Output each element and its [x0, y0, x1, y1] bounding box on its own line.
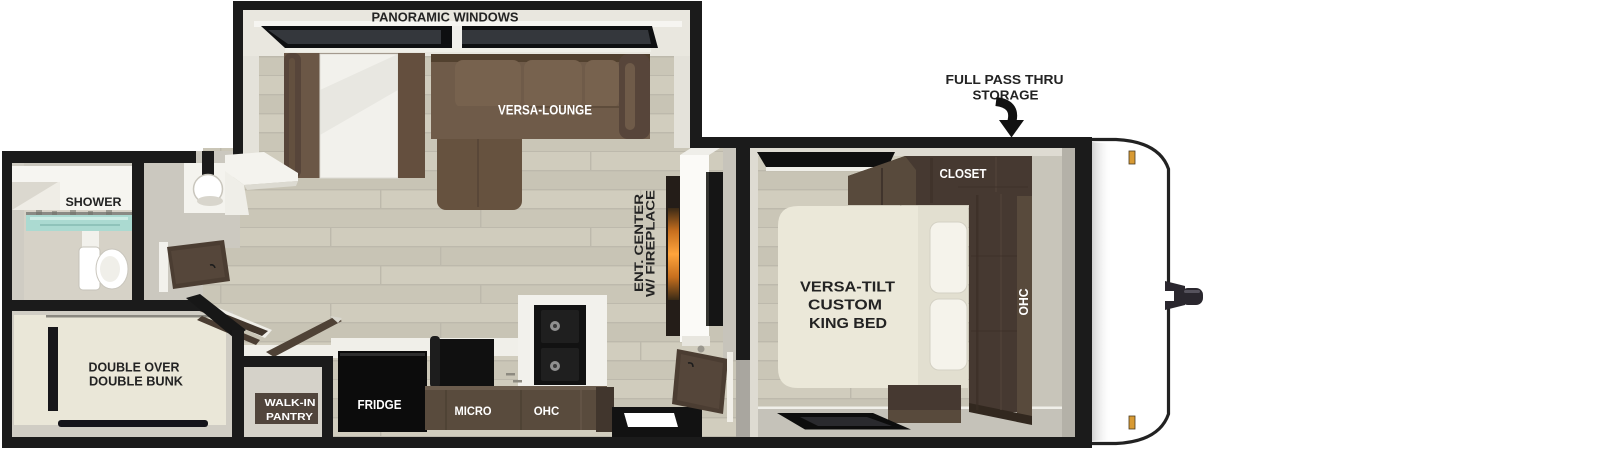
svg-text:CUSTOM: CUSTOM [808, 298, 882, 314]
svg-text:FULL PASS THRU: FULL PASS THRU [946, 72, 1064, 87]
svg-text:W/ FIREPLACE: W/ FIREPLACE [644, 190, 658, 297]
svg-text:VERSA-TILT: VERSA-TILT [800, 280, 895, 296]
svg-text:CLOSET: CLOSET [940, 166, 987, 181]
svg-text:VERSA-LOUNGE: VERSA-LOUNGE [498, 102, 592, 118]
svg-text:MICRO: MICRO [455, 404, 492, 418]
svg-text:PANORAMIC WINDOWS: PANORAMIC WINDOWS [372, 11, 519, 25]
svg-text:FRIDGE: FRIDGE [358, 398, 402, 412]
svg-text:SHOWER: SHOWER [66, 197, 123, 209]
svg-text:OHC: OHC [534, 404, 560, 418]
svg-text:DOUBLE BUNK: DOUBLE BUNK [89, 374, 184, 389]
svg-text:WALK-IN: WALK-IN [265, 397, 316, 409]
svg-text:OHC: OHC [1017, 289, 1031, 316]
svg-text:DOUBLE OVER: DOUBLE OVER [89, 360, 181, 375]
svg-text:KING BED: KING BED [809, 316, 887, 332]
svg-text:PANTRY: PANTRY [266, 411, 313, 423]
